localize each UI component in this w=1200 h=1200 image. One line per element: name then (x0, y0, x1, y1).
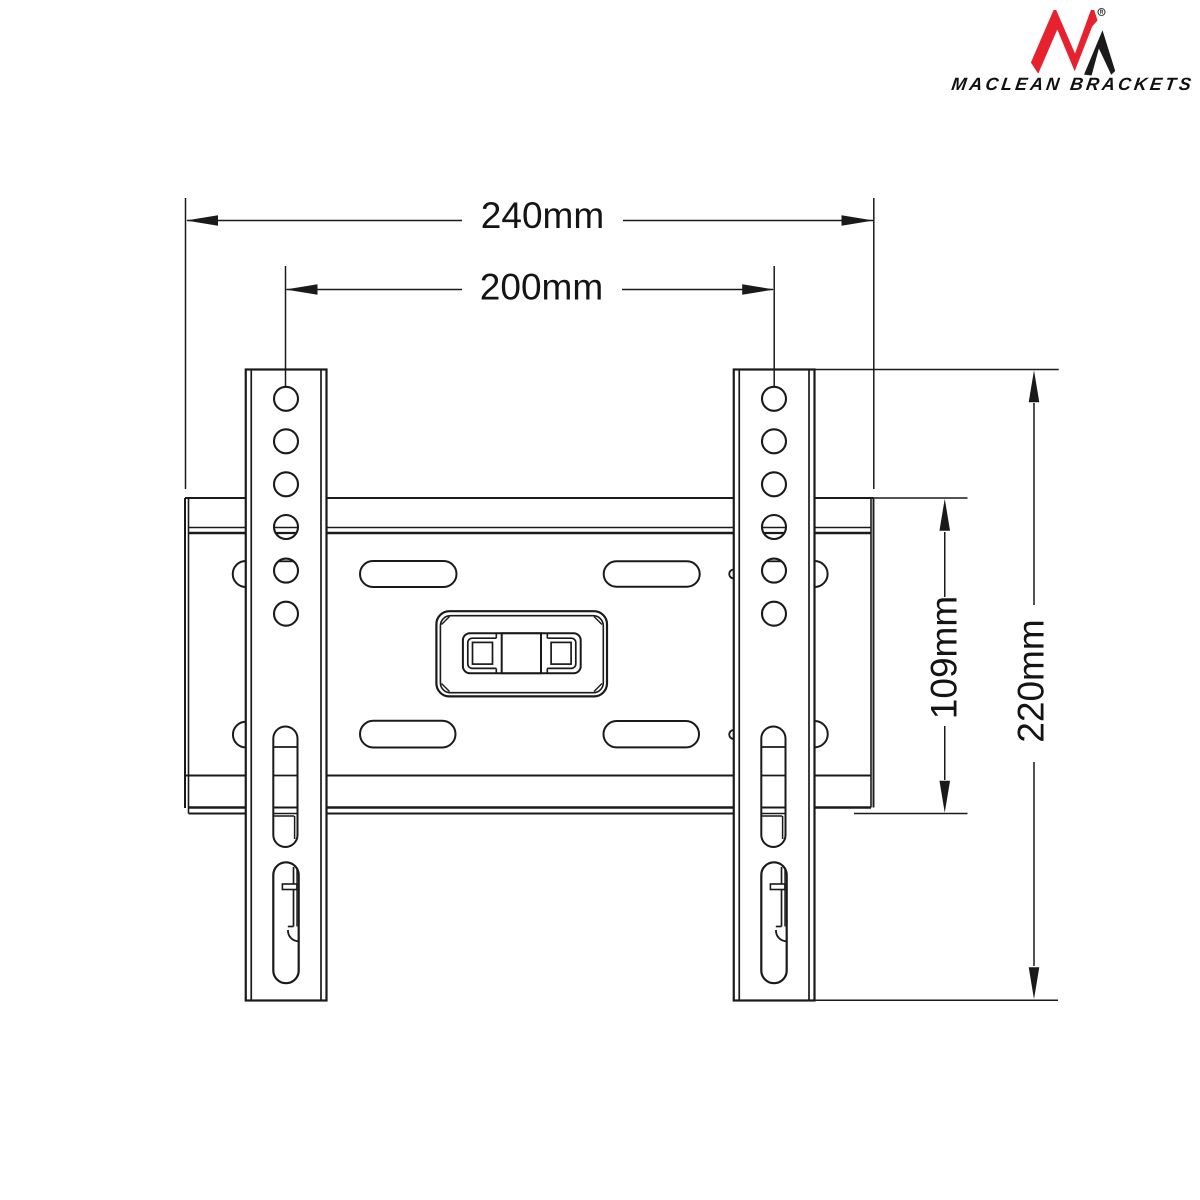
svg-text:MACLEAN BRACKETS: MACLEAN BRACKETS (950, 74, 1195, 94)
svg-text:220mm: 220mm (1011, 619, 1052, 742)
svg-text:200mm: 200mm (480, 267, 603, 308)
svg-text:109mm: 109mm (924, 596, 965, 719)
svg-text:240mm: 240mm (481, 195, 604, 236)
